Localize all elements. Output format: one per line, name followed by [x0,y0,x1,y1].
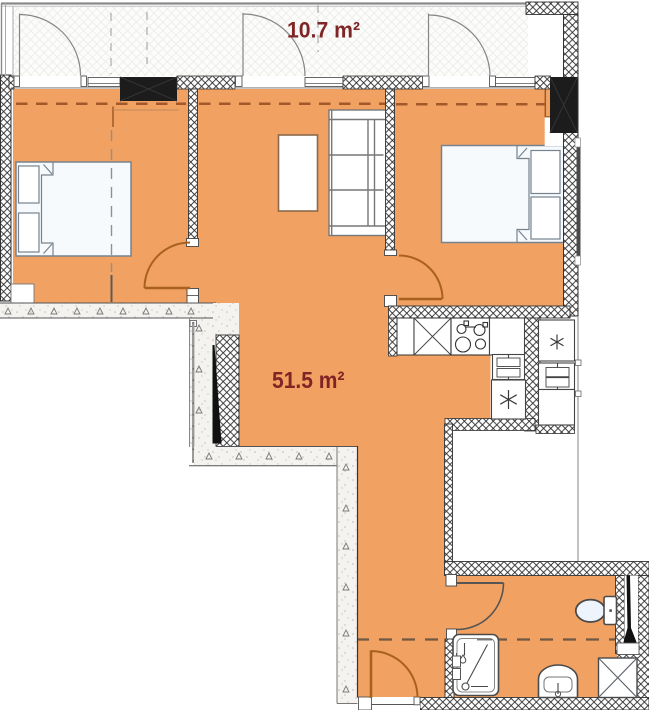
svg-text:10.7 m²: 10.7 m² [287,18,360,43]
svg-text:51.5 m²: 51.5 m² [272,367,345,393]
